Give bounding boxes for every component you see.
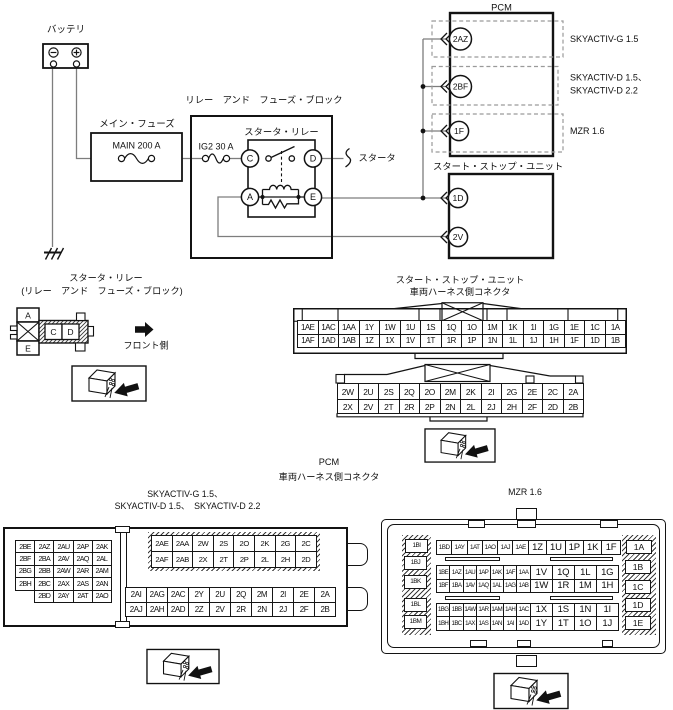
pin-cell: 2AH	[146, 602, 168, 617]
pin-cell: 2K	[460, 383, 482, 400]
terminal-e: E	[310, 192, 316, 202]
pin-cell: 2Q	[399, 383, 421, 400]
schematic: バッテリ メイン・フューズ MAIN 200 A リレー アンド フューズ・ブロ…	[0, 0, 673, 268]
pin-cell: 1K	[502, 320, 524, 335]
pin-cell: 1J	[596, 616, 619, 631]
pin-cell: 2F	[293, 602, 315, 617]
bottom-notch	[517, 640, 531, 647]
pin-cell: 2R	[399, 399, 421, 414]
pin-row: 1AF1AD1AB1Z1X1V1T1R1P1N1L1J1H1F1D1B	[297, 334, 626, 348]
top-notch	[468, 520, 485, 528]
relay-cell-e: E	[25, 344, 31, 354]
pin-row: 2X2V2T2R2P2N2L2J2H2F2D2B	[337, 399, 584, 414]
pin-cell: 1Z	[359, 334, 381, 348]
pin-cell: 2BE	[15, 540, 35, 553]
pin-2az: 2AZ	[441, 28, 472, 50]
pin-cell: 1AD	[318, 334, 340, 348]
pin-cell: 2U	[209, 587, 231, 603]
skyactiv-bottomright-pin-grid: 2AI2AG2AC2Y2U2Q2M2I2E2A2AJ2AH2AD2Z2V2R2N…	[125, 587, 336, 617]
connector-view-icon	[493, 672, 569, 710]
pin-cell: 2BF	[15, 552, 35, 565]
pin-cell: 1P	[461, 334, 483, 348]
pin-cell: 2D	[295, 551, 317, 568]
skyactiv-left-pin-grid: 2BE2AZ2AU2AP2AK2BF2BA2AV2AQ2AL2BG2BB2AW2…	[15, 540, 112, 603]
pin-cell: 2C	[295, 535, 317, 553]
pin-cell: 2L	[460, 399, 482, 414]
pin-cell: 1B	[625, 560, 651, 574]
pin-cell: 1BM	[404, 615, 427, 629]
pin-cell: 1O	[574, 616, 597, 631]
pin-row: 2AI2AG2AC2Y2U2Q2M2I2E2A	[125, 587, 336, 603]
connector-view-icon	[146, 648, 220, 685]
top-notch	[517, 520, 536, 528]
pin-cell: 1T	[420, 334, 442, 348]
pin-row: 2AE2AA2W2S2O2K2G2C	[151, 535, 317, 553]
pin-cell: 2S	[213, 535, 235, 553]
pin-cell: 2AP	[73, 540, 93, 553]
pin-cell: 1AE	[512, 540, 528, 555]
pin-cell: 1AC	[318, 320, 340, 335]
main-fuse: メイン・フューズ MAIN 200 A	[91, 118, 182, 181]
pin-cell: 1D	[625, 598, 651, 612]
pin-cell: 1U	[400, 320, 422, 335]
pin-cell: 1BL	[404, 598, 427, 612]
pin-cell: 1AP	[476, 565, 490, 580]
pin-cell: 2AX	[53, 577, 73, 590]
pin-cell: 1E	[625, 616, 651, 630]
pin-cell: 1X	[530, 603, 553, 618]
pin-cell: 1AM	[490, 603, 504, 618]
pcm-pin-grid: 2W2U2S2Q2O2M2K2I2G2E2C2A2X2V2T2R2P2N2L2J…	[337, 383, 584, 414]
mzr-pin-row: 1BG1BB1AW1AR1AM1AH1AC 1X1S1N1I	[436, 603, 619, 618]
pin-cell: 1BB	[449, 603, 463, 618]
ground-icon	[44, 248, 64, 260]
pin-cell: 1C	[584, 320, 606, 335]
pin-cell: 2AV	[53, 552, 73, 565]
pin-row: 2BG2BB2AW2AR2AM	[15, 565, 112, 578]
top-tab	[516, 508, 537, 520]
pin-cell: 1X	[379, 334, 401, 348]
ssu-title: スタート・ストップ・ユニット	[433, 162, 563, 172]
pin-cell: 1J	[523, 334, 545, 348]
pin-cell: 2R	[230, 602, 252, 617]
starter-branch: スタータ	[346, 149, 396, 168]
pin-cell: 1BJ	[404, 556, 427, 570]
pin-row: 2W2U2S2Q2O2M2K2I2G2E2C2A	[337, 383, 584, 400]
mzr-left-pin-column: 1BI1BJ1BK1BL1BM	[402, 535, 431, 635]
pin-cell: 2Q	[230, 587, 252, 603]
connector-view-icon	[423, 428, 497, 463]
pin-cell: 2W	[337, 383, 359, 400]
pin-cell: 2M	[251, 587, 273, 603]
pin-cell: 2N	[251, 602, 273, 617]
pin-cell: 1AZ	[449, 565, 463, 580]
pin-cell: 2O	[233, 535, 255, 553]
pcm-connector2-figure: 2W2U2S2Q2O2M2K2I2G2E2C2A2X2V2T2R2P2N2L2J…	[335, 363, 585, 425]
sky-variant-title2: SKYACTIV-D 1.5、 SKYACTIV-D 2.2	[80, 499, 295, 512]
pcm-harness-title1: PCM	[254, 457, 404, 467]
pin-cell: 1AT	[467, 540, 483, 555]
pin-cell: 1C	[625, 580, 651, 594]
pin-cell: 2AB	[172, 551, 194, 568]
pin-cell: 2BC	[34, 577, 54, 590]
pin-cell: 1BE	[436, 565, 450, 580]
battery-label: バッテリ	[47, 25, 85, 36]
row-separator	[445, 596, 500, 600]
pin-cell: 1S	[552, 603, 575, 618]
variant-mzr: MZR 1.6	[570, 126, 605, 136]
main-fuse-title: メイン・フューズ	[99, 118, 175, 130]
pin-cell: 2U	[358, 383, 380, 400]
relay-view-title2: (リレー アンド フューズ・ブロック)	[21, 285, 182, 296]
pin-cell: 1AY	[451, 540, 467, 555]
skyactiv-topright-hatched: 2AE2AA2W2S2O2K2G2C2AF2AB2X2T2P2L2H2D	[148, 532, 320, 571]
pin-cell: 2L	[254, 551, 276, 568]
top-notch	[115, 526, 130, 533]
pin-cell: 1N	[574, 603, 597, 618]
pin-cell: 2J	[481, 399, 503, 414]
terminal-c: C	[247, 154, 254, 164]
mzr-right-pin-column: 1A1B1C1D1E	[622, 535, 656, 635]
pin-cell: 2H	[275, 551, 297, 568]
ss-pin-grid: 1AE1AC1AA1Y1W1U1S1Q1O1M1K1I1G1E1C1A1AF1A…	[297, 320, 626, 348]
pin-cell: 2AL	[92, 552, 112, 565]
pin-cell: 2T	[213, 551, 235, 568]
pin-cell: 1AE	[297, 320, 319, 335]
pin-cell: 2AA	[172, 535, 194, 553]
pin-cell: 1AB	[338, 334, 360, 348]
pin-cell: 1AI	[503, 616, 517, 631]
pin-cell: 1AF	[503, 565, 517, 580]
variant-skyactiv-d-2: SKYACTIV-D 2.2	[570, 86, 638, 96]
pin-cell: 1U	[546, 540, 565, 555]
bottom-notch	[115, 621, 130, 628]
starter-relay-title: スタータ・リレー	[244, 127, 318, 137]
pin-cell: 1AQ	[476, 579, 490, 594]
pin-cell: 1BG	[436, 603, 450, 618]
pin-cell: 2BG	[15, 565, 35, 578]
pin-cell: 2W	[192, 535, 214, 553]
pin-cell: 2AS	[73, 577, 93, 590]
pin-cell: 1G	[543, 320, 565, 335]
pin-cell: 2O	[419, 383, 441, 400]
bottom-notch	[602, 640, 613, 647]
pin-cell: 1AG	[503, 579, 517, 594]
pin-cell: 2AJ	[125, 602, 147, 617]
pin-cell: 1R	[441, 334, 463, 348]
battery-symbol: バッテリ	[43, 25, 88, 69]
pin-row: 2BE2AZ2AU2AP2AK	[15, 540, 112, 553]
relay-cell-d: D	[67, 327, 73, 337]
pin-cell: 1AW	[463, 603, 477, 618]
pin-cell: 1BA	[449, 579, 463, 594]
pin-cell: 2AG	[146, 587, 168, 603]
pin-cell: 1BC	[449, 616, 463, 631]
pin-cell: 2AU	[53, 540, 73, 553]
pin-cell: 1AC	[516, 603, 530, 618]
pin-cell: 1BI	[405, 539, 428, 553]
pin-cell: 1AX	[463, 616, 477, 631]
pin-label: 1F	[454, 126, 464, 136]
pcm-harness-title2: 車両ハーネス側コネクタ	[254, 469, 404, 483]
pin-cell: 1H	[596, 579, 619, 594]
pin-cell: 2BA	[34, 552, 54, 565]
front-direction-arrow-icon	[135, 322, 154, 337]
wiring-diagram-page: バッテリ メイン・フューズ MAIN 200 A リレー アンド フューズ・ブロ…	[0, 0, 673, 710]
pin-cell: 2AZ	[34, 540, 54, 553]
pin-cell: 1V	[530, 565, 553, 580]
relay-block-title: リレー アンド フューズ・ブロック	[185, 94, 342, 105]
pin-cell: 1A	[626, 540, 652, 554]
starter-label: スタータ	[359, 153, 396, 163]
pin-cell: 1Y	[530, 616, 553, 631]
pin-cell: 2V	[209, 602, 231, 617]
pin-cell: 1B	[605, 334, 627, 348]
pin-cell: 1F	[564, 334, 586, 348]
pin-cell: 1M	[574, 579, 597, 594]
pin-cell: 1G	[596, 565, 619, 580]
pin-cell: 1E	[564, 320, 586, 335]
pin-cell: 2AI	[125, 587, 147, 603]
pin-cell: 1AK	[490, 565, 504, 580]
pin-cell: 2AR	[73, 565, 93, 578]
pin-cell: 1N	[482, 334, 504, 348]
pin-cell: 1BK	[404, 575, 427, 589]
pin-cell: 2P	[419, 399, 441, 414]
skyactiv-connector-figure: 2BE2AZ2AU2AP2AK2BF2BA2AV2AQ2AL2BG2BB2AW2…	[3, 527, 371, 629]
ss-connector-figure: スタート・ストップ・ユニット 車両ハーネス側コネクタ 1AE1AC1AA1Y1W…	[293, 272, 627, 360]
terminal-d: D	[310, 154, 317, 164]
top-notch	[600, 520, 618, 528]
relay-and-fuse-block: リレー アンド フューズ・ブロック IG2 30 A スタータ・リレー	[185, 94, 342, 258]
pin-cell: 2AF	[151, 551, 173, 568]
mzr-variant-title: MZR 1.6	[485, 487, 565, 497]
pin-cell: 2BD	[34, 590, 54, 603]
ss-connector-title2: 車両ハーネス側コネクタ	[293, 284, 627, 298]
pin-row: 2BH2BC2AX2AS2AN	[15, 577, 112, 590]
pin-cell: 2BH	[15, 577, 35, 590]
pin-cell: 2G	[275, 535, 297, 553]
pin-cell: 2J	[272, 602, 294, 617]
starter-relay: スタータ・リレー C D A	[241, 127, 321, 217]
pin-cell: 1AA	[338, 320, 360, 335]
pin-cell: 1R	[552, 579, 575, 594]
pin-cell: 2AN	[92, 577, 112, 590]
pin-cell: 2X	[192, 551, 214, 568]
mzr-pin-row: 1BD1AY1AT1AO1AJ1AE 1Z1U1P1K1F	[436, 540, 621, 555]
side-tab	[347, 543, 368, 566]
pin-cell: 1D	[584, 334, 606, 348]
pin-cell: 2AC	[167, 587, 189, 603]
pin-cell: 2AE	[151, 535, 173, 553]
pin-cell: 2H	[501, 399, 523, 414]
pin-cell: 2AT	[73, 590, 93, 603]
main-fuse-value: MAIN 200 A	[112, 141, 160, 151]
pin-cell: 1BF	[436, 579, 450, 594]
bottom-tab	[516, 655, 537, 667]
mzr-connector-figure: 1BI1BJ1BK1BL1BM 1A1B1C1D1E 1BD1AY1AT1AO1…	[381, 507, 671, 669]
pin-cell: 2K	[254, 535, 276, 553]
pin-cell: 2E	[293, 587, 315, 603]
pin-cell: 2Y	[188, 587, 210, 603]
relay-cell-a: A	[25, 311, 31, 321]
relay-view-title1: スタータ・リレー	[69, 273, 143, 283]
pin-cell: 1AO	[482, 540, 498, 555]
pin-cell: 1AD	[516, 616, 530, 631]
pin-cell: 2AQ	[73, 552, 93, 565]
pin-cell: 2D	[542, 399, 564, 414]
side-tab	[347, 587, 368, 611]
pin-cell: 1Q	[552, 565, 575, 580]
pin-cell: 1AS	[476, 616, 490, 631]
pin-cell: 2C	[542, 383, 564, 400]
relay-cell-c: C	[50, 327, 56, 337]
pin-cell: 1W	[379, 320, 401, 335]
pin-cell: 1K	[583, 540, 602, 555]
pin-cell: 1M	[482, 320, 504, 335]
variant-skyactiv-d-1: SKYACTIV-D 1.5、	[570, 73, 647, 83]
row-separator	[550, 596, 613, 600]
front-side-label: フロント側	[123, 340, 168, 351]
pin-cell: 2B	[563, 399, 585, 414]
pin-cell: 2AD	[167, 602, 189, 617]
pin-cell: 2V	[358, 399, 380, 414]
pin-cell: 1AV	[463, 579, 477, 594]
pin-cell: 2AO	[92, 590, 112, 603]
pin-row: 2AF2AB2X2T2P2L2H2D	[151, 551, 317, 568]
pin-cell: 1Z	[528, 540, 547, 555]
pin-cell: 1I	[596, 603, 619, 618]
pin-cell: 1L	[502, 334, 524, 348]
pin-cell: 2T	[378, 399, 400, 414]
pin-cell: 1AB	[516, 579, 530, 594]
pin-cell: 1V	[400, 334, 422, 348]
pin-cell: 1AN	[490, 616, 504, 631]
pin-cell: 1AU	[463, 565, 477, 580]
pin-cell: 2N	[440, 399, 462, 414]
pin-cell: 1I	[523, 320, 545, 335]
pin-cell: 2P	[233, 551, 255, 568]
row-separator	[445, 557, 500, 561]
pin-label: 1D	[453, 193, 464, 203]
pin-cell: 2X	[337, 399, 359, 414]
continuation-squiggle-icon	[346, 149, 351, 168]
pin-cell: 1F	[601, 540, 620, 555]
pin-cell: 1AH	[503, 603, 517, 618]
pin-cell: 2AM	[92, 565, 112, 578]
pin-row: 2BD2AY2AT2AO	[15, 590, 112, 603]
pin-cell: 1AF	[297, 334, 319, 348]
pin-1f: 1F	[441, 121, 469, 140]
pin-label: 2AZ	[453, 34, 468, 44]
pin-cell: 1AR	[476, 603, 490, 618]
terminal-a: A	[247, 192, 253, 202]
pin-cell: 1H	[543, 334, 565, 348]
pin-cell: 2AK	[92, 540, 112, 553]
pin-cell: 2AW	[53, 565, 73, 578]
pin-cell: 1Y	[359, 320, 381, 335]
pin-cell: 1AL	[490, 579, 504, 594]
pin-cell: 2AY	[53, 590, 73, 603]
pin-cell: 1T	[552, 616, 575, 631]
pin-cell: 2F	[522, 399, 544, 414]
pin-cell: 2M	[440, 383, 462, 400]
pin-cell: 1O	[461, 320, 483, 335]
skyactiv-topright-pin-grid: 2AE2AA2W2S2O2K2G2C2AF2AB2X2T2P2L2H2D	[151, 535, 317, 568]
row-separator	[550, 557, 613, 561]
pin-cell: 1BH	[436, 616, 450, 631]
pin-cell: 1S	[420, 320, 442, 335]
pin-2bf: 2BF	[441, 76, 472, 98]
variant-skyactiv-g: SKYACTIV-G 1.5	[570, 34, 638, 44]
pin-cell: 1L	[574, 565, 597, 580]
pin-cell: 1BD	[436, 540, 452, 555]
pin-row: 2AJ2AH2AD2Z2V2R2N2J2F2B	[125, 602, 336, 617]
pin-cell: 1A	[605, 320, 627, 335]
bottom-notch	[470, 640, 487, 647]
pin-cell: 2G	[501, 383, 523, 400]
pin-cell: 2I	[272, 587, 294, 603]
pin-row: 2BF2BA2AV2AQ2AL	[15, 552, 112, 565]
connector-view-icon	[70, 365, 148, 402]
pin-cell: 2A	[563, 383, 585, 400]
pin-cell	[15, 590, 35, 603]
pin-cell: 2E	[522, 383, 544, 400]
pin-cell: 2B	[314, 602, 336, 617]
pin-cell: 1P	[565, 540, 584, 555]
pin-cell: 2A	[314, 587, 336, 603]
mzr-pin-row: 1BF1BA1AV1AQ1AL1AG1AB 1W1R1M1H	[436, 579, 619, 594]
mzr-pin-row: 1BH1BC1AX1AS1AN1AI1AD 1Y1T1O1J	[436, 616, 619, 631]
pin-row: 1AE1AC1AA1Y1W1U1S1Q1O1M1K1I1G1E1C1A	[297, 320, 626, 335]
pin-label: 2V	[453, 232, 464, 242]
pin-cell: 2Z	[188, 602, 210, 617]
relay-connector-view: スタータ・リレー (リレー アンド フューズ・ブロック) A C D E フロン…	[0, 268, 200, 368]
mzr-pin-row: 1BE1AZ1AU1AP1AK1AF1AA 1V1Q1L1G	[436, 565, 619, 580]
pin-cell: 2I	[481, 383, 503, 400]
pin-cell: 1AJ	[497, 540, 513, 555]
pin-cell: 1Q	[441, 320, 463, 335]
pin-cell: 2S	[378, 383, 400, 400]
fuse-icon	[202, 154, 229, 163]
pin-cell: 1W	[530, 579, 553, 594]
pin-cell: 2BB	[34, 565, 54, 578]
pin-cell: 1AA	[516, 565, 530, 580]
ig2-fuse-label: IG2 30 A	[198, 142, 233, 152]
pin-label: 2BF	[453, 82, 468, 92]
pcm-title: PCM	[491, 3, 512, 13]
